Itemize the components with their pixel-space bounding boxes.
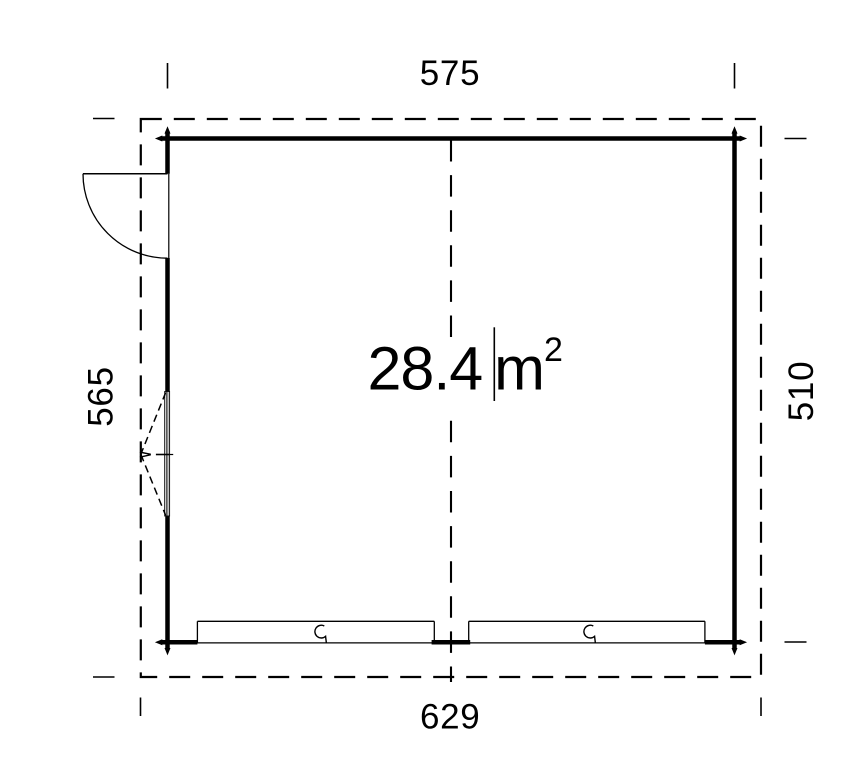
svg-text:510: 510	[782, 361, 821, 422]
svg-text:565: 565	[82, 366, 121, 427]
svg-text:28.4 m2: 28.4 m2	[368, 331, 563, 403]
svg-text:575: 575	[420, 54, 481, 93]
svg-text:629: 629	[420, 698, 481, 737]
